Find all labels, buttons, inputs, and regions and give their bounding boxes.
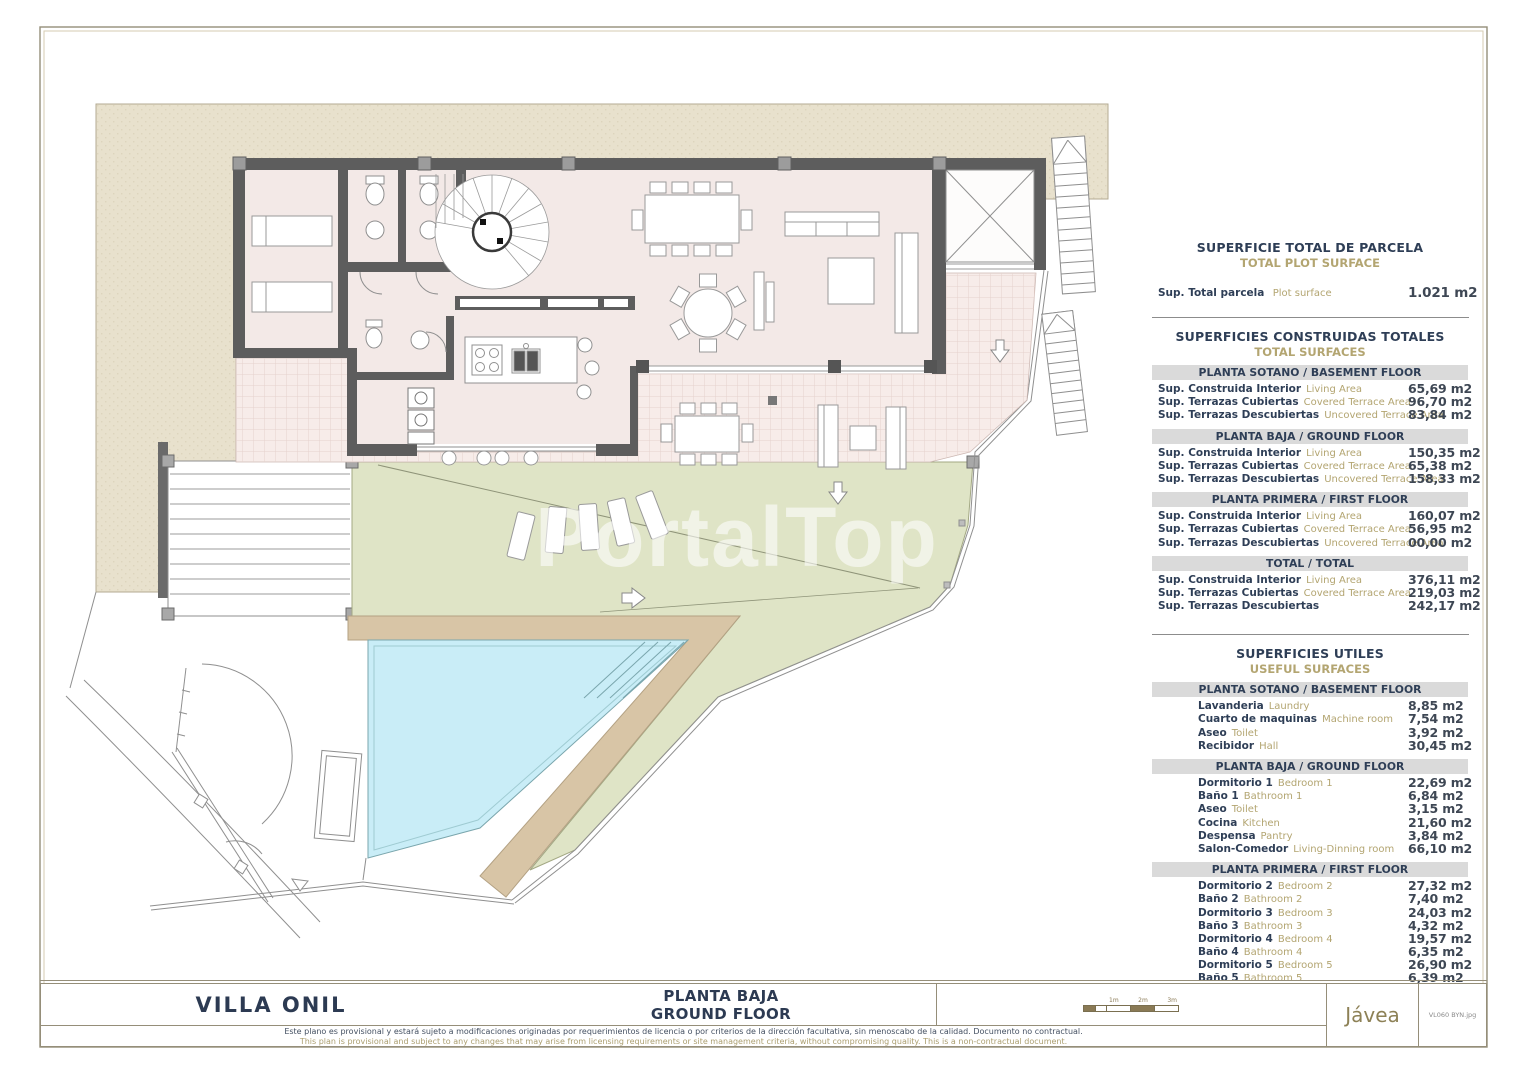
disclaimer: Este plano es provisional y estará sujet… xyxy=(41,1025,1326,1046)
floor-band-header: TOTAL / TOTAL xyxy=(1152,556,1468,571)
title-block: VILLA ONIL PLANTA BAJA GROUND FLOOR 1m 2… xyxy=(40,983,1487,1047)
watermark-text: PortalTop xyxy=(535,490,939,584)
surface-row: Salon-ComedorLiving-Dinning room66,10 m2 xyxy=(1150,843,1490,856)
section-title: SUPERFICIES CONSTRUIDAS TOTALES xyxy=(1150,329,1470,344)
project-title: VILLA ONIL xyxy=(161,993,381,1017)
terrace-column xyxy=(768,396,777,405)
section-subtitle: USEFUL SURFACES xyxy=(1150,662,1470,676)
useful-surfaces-groups: PLANTA SOTANO / BASEMENT FLOORLavanderia… xyxy=(1150,682,1490,985)
divider xyxy=(1152,317,1469,318)
exterior-stair-lower xyxy=(1042,310,1088,435)
section-subtitle: TOTAL SURFACES xyxy=(1150,345,1470,359)
floor-band-header: PLANTA PRIMERA / FIRST FLOOR xyxy=(1152,492,1468,507)
surface-row: Sup. Terrazas DescubiertasUncovered Terr… xyxy=(1150,473,1490,486)
section-subtitle: TOTAL PLOT SURFACE xyxy=(1150,256,1470,270)
scale-bar: 1m 2m 3m xyxy=(1083,997,1179,1012)
location-cell: Jávea xyxy=(1327,984,1419,1046)
divider xyxy=(1152,634,1469,635)
plan-sheet: PortalTop SUPERFICIE TOTAL DE PARCELA TO… xyxy=(0,0,1527,1080)
surface-row: Sup. Terrazas DescubiertasUncovered Terr… xyxy=(1150,537,1490,550)
surface-summary-panel: SUPERFICIE TOTAL DE PARCELA TOTAL PLOT S… xyxy=(1150,240,1490,986)
cell-divider xyxy=(936,984,937,1025)
plan-title: PLANTA BAJA GROUND FLOOR xyxy=(601,987,841,1023)
floor-band-header: PLANTA SOTANO / BASEMENT FLOOR xyxy=(1152,682,1468,697)
appliance-tower xyxy=(408,388,434,444)
skylight-void xyxy=(946,170,1034,269)
section-title: SUPERFICIE TOTAL DE PARCELA xyxy=(1150,240,1470,255)
surface-row: RecibidorHall30,45 m2 xyxy=(1150,740,1490,753)
file-ref-cell: VL060 BYN.jpg xyxy=(1419,984,1486,1046)
surface-row: Sup. Terrazas Descubiertas242,17 m2 xyxy=(1150,600,1490,613)
floor-band-header: PLANTA PRIMERA / FIRST FLOOR xyxy=(1152,862,1468,877)
section-title: SUPERFICIES UTILES xyxy=(1150,646,1470,661)
built-surfaces-groups: PLANTA SOTANO / BASEMENT FLOORSup. Const… xyxy=(1150,365,1490,613)
floor-band-header: PLANTA BAJA / GROUND FLOOR xyxy=(1152,759,1468,774)
spiral-stair xyxy=(435,174,549,289)
plot-total-section: SUPERFICIE TOTAL DE PARCELA TOTAL PLOT S… xyxy=(1150,240,1490,302)
floor-band-header: PLANTA BAJA / GROUND FLOOR xyxy=(1152,429,1468,444)
built-surfaces-section: SUPERFICIES CONSTRUIDAS TOTALES TOTAL SU… xyxy=(1150,329,1490,613)
floor-band-header: PLANTA SOTANO / BASEMENT FLOOR xyxy=(1152,365,1468,380)
title-row: VILLA ONIL PLANTA BAJA GROUND FLOOR 1m 2… xyxy=(41,984,1326,1025)
surface-row: Sup. Terrazas DescubiertasUncovered Terr… xyxy=(1150,409,1490,422)
hillside-steps xyxy=(162,455,358,620)
useful-surfaces-section: SUPERFICIES UTILES USEFUL SURFACES PLANT… xyxy=(1150,646,1490,985)
plot-total-row: Sup. Total parcela Plot surface 1.021 m2 xyxy=(1150,284,1490,302)
